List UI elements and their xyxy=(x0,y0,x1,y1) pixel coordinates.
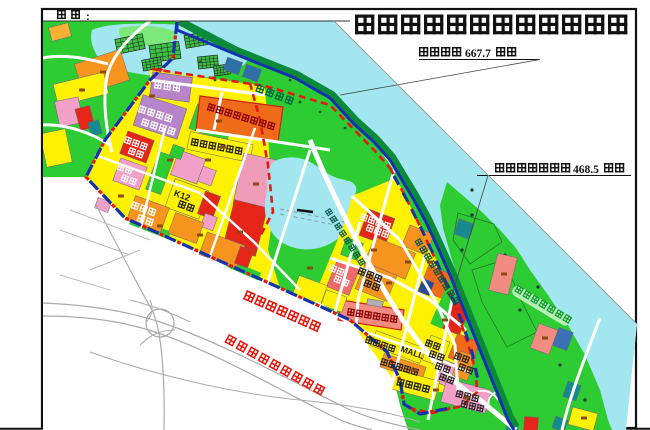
svg-text:667.7: 667.7 xyxy=(465,48,491,60)
svg-text:468.5: 468.5 xyxy=(573,164,599,176)
